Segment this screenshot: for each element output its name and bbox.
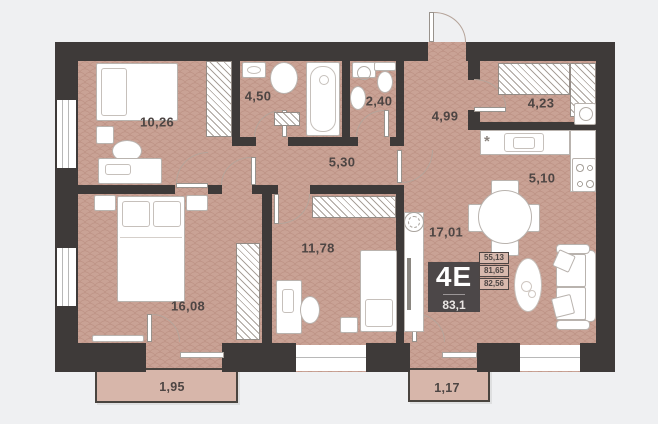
balcony-door-sill-1 [180,352,224,358]
wall-bottom-3 [366,343,410,372]
room-label-corridor: 5,30 [329,155,356,170]
tv-living [407,258,411,310]
desk-bedroom3 [276,280,302,334]
nightstand-left-bedroom2 [94,195,116,211]
window-bottom-1 [296,345,366,371]
entrance-floor-gap [428,42,466,61]
wc-door-leaf [384,110,389,137]
wardrobe-bedroom3 [312,196,396,218]
toilet-tank [374,62,396,71]
wall-wc-hallway [396,61,404,146]
desk-bedroom1 [98,158,162,184]
balcony1-door-arc [152,314,180,342]
room-label-bedroom-3: 11,78 [301,241,334,256]
window-left-2 [57,248,76,306]
wall-storage-west-1 [468,61,480,80]
bedroom1-door-leaf [176,183,208,188]
bedroom2-door-leaf [251,157,256,185]
sofa-armrest-bottom [556,320,590,330]
wall-corridor-south-4 [310,185,396,194]
washbasin-bathroom [270,62,298,94]
fridge-symbol-icon: * [484,133,490,150]
wall-corridor-south-1 [78,185,175,194]
bedroom3-door-arc [279,194,310,224]
wall-bottom-4 [477,343,520,372]
room-label-balcony-2: 1,17 [434,381,460,395]
bed-bedroom1 [96,63,178,121]
room-label-wc: 2,40 [366,94,393,109]
kitchen-sink [504,133,544,152]
metric-box-2: 81,65 [479,265,509,277]
wall-corridor-south-3 [252,185,278,194]
balcony1-door-leaf [147,314,152,342]
room-label-balcony-1: 1,95 [159,380,185,394]
stove [572,158,596,192]
unit-total-area: 83,1 [442,298,465,312]
wall-bedroom2-bedroom3 [262,194,272,343]
laptop-bedroom1 [105,164,131,175]
bathtub [306,62,340,136]
wall-right [596,42,615,372]
balcony-door-sill-2 [442,352,477,358]
room-label-bathroom: 4,50 [245,89,272,104]
wall-wc-south-1 [350,137,358,146]
metric-box-3: 82,56 [479,278,509,290]
wall-bedroom1-bath [232,61,240,146]
corridor-door-arc [402,150,433,183]
pillow-bedroom1 [101,68,127,116]
window-left-1 [57,100,76,168]
wall-bath-south-1 [240,137,256,146]
floor-plan-canvas: * 4E 83,1 55,13 81,65 82,56 [0,0,658,424]
wall-bottom-5 [580,343,615,372]
wall-bottom-2 [222,343,296,372]
blanket-line [120,237,182,238]
toilet-bowl [377,71,393,93]
pillow-right-bedroom2 [153,201,181,227]
unit-type-label: 4E [436,263,472,291]
room-label-living: 17,01 [429,225,463,240]
laptop-bedroom3 [282,289,294,313]
wc-door-arc [356,110,384,137]
bedroom2-door-arc [221,157,251,185]
storage-door-leaf [474,107,506,112]
boiler-wc [352,62,376,78]
wall-top-right [466,42,615,61]
dining-table [478,190,532,244]
room-label-hallway: 4,99 [432,109,459,124]
corridor-door-leaf [397,150,402,183]
wardrobe-bedroom2 [236,243,260,340]
wall-top-left [55,42,428,61]
wall-bottom-1 [55,343,146,372]
wall-corridor-south-2 [208,185,222,194]
room-label-bedroom-2: 16,08 [171,299,205,314]
metric-box-1: 55,13 [479,252,509,264]
tv-bedroom2 [92,335,144,342]
wardrobe-bedroom1 [206,61,232,137]
desk-chair-bedroom3 [300,296,320,324]
plant-icon [404,212,424,232]
room-label-storage: 4,23 [528,96,555,111]
room-label-bedroom-1: 10,26 [140,115,174,130]
sink-bathroom [242,62,266,78]
wall-bath-south-2 [288,137,342,146]
bed-bedroom3 [360,250,397,332]
unit-badge: 4E 83,1 [428,262,480,312]
washing-machine [574,103,596,125]
bedroom3-door-leaf [274,194,279,224]
side-table-bedroom3 [340,317,358,333]
bathtub-inner [310,66,336,132]
sink-basin [247,66,261,74]
bed-bedroom2 [117,196,185,302]
nightstand-bedroom1 [96,126,114,144]
badge-divider [443,294,465,295]
wall-bath-wc [342,61,350,146]
rug-living [514,258,542,312]
pillow-left-bedroom2 [122,201,150,227]
nightstand-right-bedroom2 [186,195,208,211]
wall-wc-south-2 [390,137,396,146]
entrance-door-arc [434,12,466,42]
bedroom1-door-arc [176,152,208,183]
washbasin-wc [350,86,366,110]
shelving-storage-top [498,63,570,95]
kitchen-sink-bowl [513,137,535,149]
room-label-kitchen: 5,10 [529,171,556,186]
bath-mat [274,112,300,126]
wall-left [55,42,78,372]
window-bottom-2 [520,345,580,371]
wall-bedroom3-living [396,185,404,343]
pillow-bedroom3 [365,299,393,327]
